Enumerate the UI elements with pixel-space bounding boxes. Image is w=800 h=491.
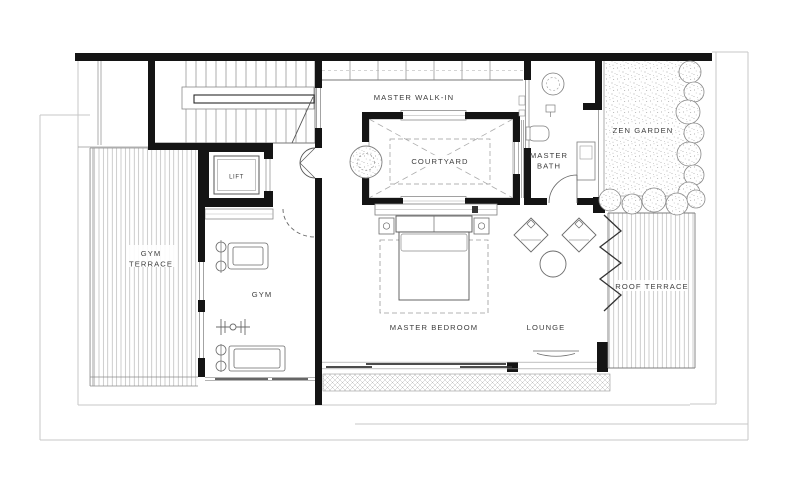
master-bath-label-line1: MASTER: [530, 151, 568, 160]
toilet: [528, 126, 549, 141]
zen-garden: ZEN GARDEN: [604, 61, 704, 204]
terrace-pier-south: [597, 342, 608, 372]
lounge-table: [540, 251, 566, 277]
courtyard-label: COURTYARD: [411, 157, 468, 166]
gym-terrace-label-line1: GYM: [141, 249, 162, 258]
bath-west-wall: [524, 61, 531, 80]
hall-east-wall: [315, 61, 322, 88]
bath-tub: [542, 73, 564, 95]
bath-east-wall: [595, 61, 602, 110]
gym-terrace: GYM TERRACE: [90, 148, 198, 386]
bedroom-west-wall: [315, 178, 322, 405]
lift-label: LIFT: [229, 175, 244, 181]
nightstand-right: [474, 218, 489, 234]
gym-terrace-label-line2: TERRACE: [129, 260, 173, 269]
roof-terrace: ROOF TERRACE: [599, 188, 705, 368]
master-walk-in-label: MASTER WALK-IN: [374, 93, 455, 102]
master-bedroom-label: MASTER BEDROOM: [390, 323, 478, 332]
floor-plan-canvas: GYM TERRACE: [0, 0, 800, 491]
courtyard-tree: [350, 146, 382, 178]
master-bath-label-line2: BATH: [537, 162, 561, 171]
lounge-label: LOUNGE: [527, 323, 566, 332]
lift-door-opening: [264, 159, 273, 191]
roof-terrace-label: ROOF TERRACE: [615, 282, 688, 291]
gym-label: GYM: [252, 290, 273, 299]
stair-handrail: [194, 95, 314, 103]
mattress: [399, 232, 469, 300]
bath-fixture: [546, 105, 555, 112]
zen-garden-label: ZEN GARDEN: [613, 126, 674, 135]
paving-strip: [323, 374, 610, 391]
stair-west-wall: [148, 61, 155, 143]
shower-fixture: [519, 96, 525, 105]
north-wall: [75, 53, 712, 61]
floor-plan-page: GYM TERRACE: [0, 0, 800, 491]
nightstand-left: [379, 218, 394, 234]
bath-south-wall: [524, 198, 547, 205]
gym-west-wall: [198, 150, 205, 262]
